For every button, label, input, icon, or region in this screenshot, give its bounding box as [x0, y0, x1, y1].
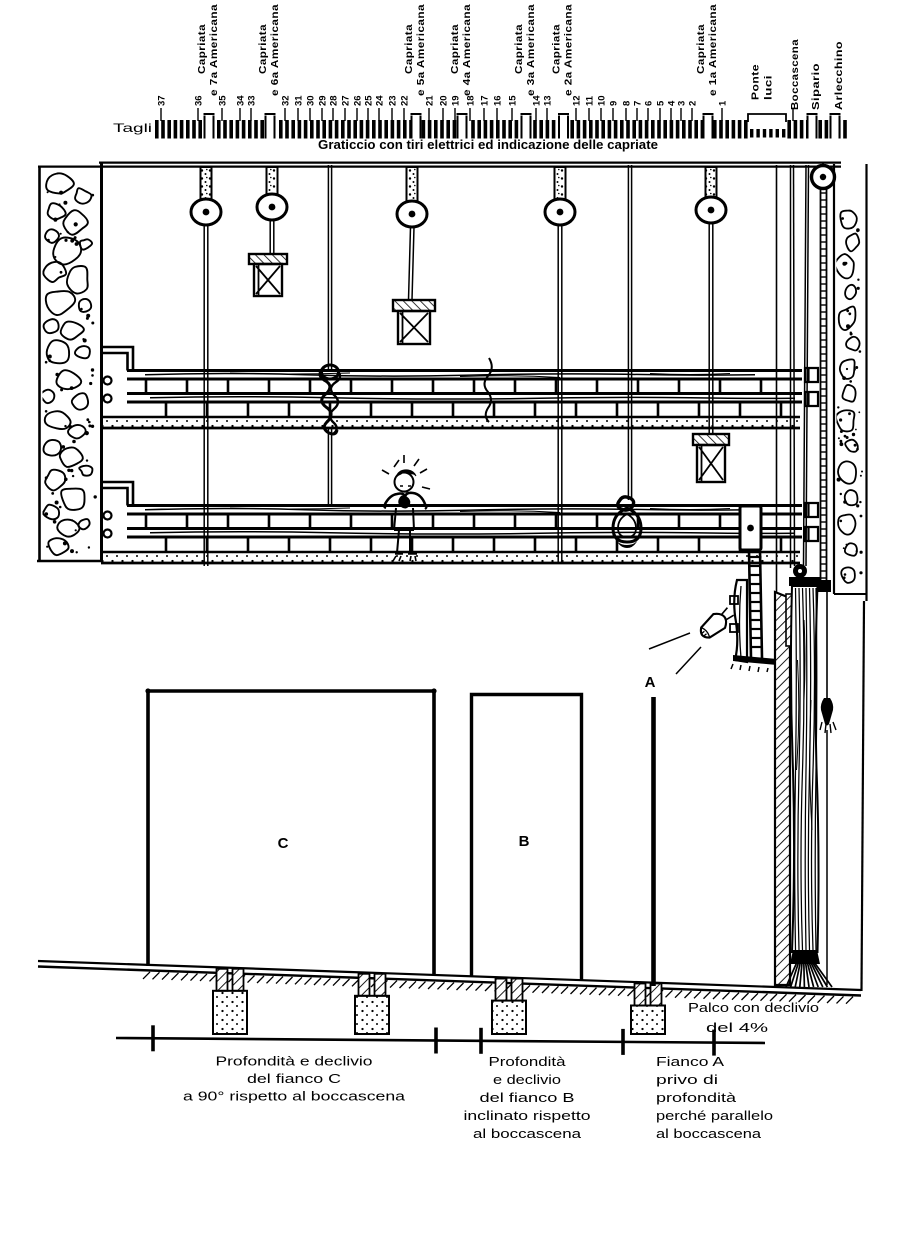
svg-text:23: 23	[387, 95, 398, 106]
svg-text:A: A	[645, 674, 656, 691]
svg-text:10: 10	[596, 95, 607, 106]
svg-text:27: 27	[340, 95, 351, 106]
svg-text:e 7a Americana: e 7a Americana	[208, 4, 220, 96]
svg-text:5: 5	[655, 100, 666, 106]
svg-text:e 2a Americana: e 2a Americana	[563, 4, 575, 96]
svg-text:8: 8	[621, 101, 632, 106]
svg-text:Capriata: Capriata	[257, 24, 269, 74]
svg-text:29: 29	[317, 95, 328, 106]
svg-text:11: 11	[584, 95, 595, 106]
svg-text:22: 22	[399, 95, 410, 106]
svg-text:e 1a Americana: e 1a Americana	[707, 4, 719, 96]
svg-text:Palco con declivio: Palco con declivio	[688, 1000, 819, 1015]
svg-text:Arlecchino: Arlecchino	[833, 41, 845, 110]
svg-text:26: 26	[352, 95, 363, 106]
svg-text:a 90° rispetto al boccascena: a 90° rispetto al boccascena	[183, 1089, 406, 1104]
svg-text:19: 19	[450, 95, 461, 106]
svg-text:Graticcio con tiri elettrici e: Graticcio con tiri elettrici ed indicazi…	[318, 138, 658, 152]
svg-text:1: 1	[717, 100, 728, 106]
svg-text:Capriata: Capriata	[403, 24, 415, 74]
svg-text:Tagli: Tagli	[113, 121, 152, 135]
svg-text:12: 12	[571, 95, 582, 106]
svg-text:Profondità: Profondità	[489, 1054, 567, 1069]
svg-text:2: 2	[687, 101, 698, 106]
svg-text:inclinato rispetto: inclinato rispetto	[464, 1108, 591, 1123]
svg-text:Capriata: Capriata	[550, 24, 562, 74]
svg-text:17: 17	[479, 95, 490, 106]
svg-text:luci: luci	[763, 75, 775, 100]
svg-text:e 4a Americana: e 4a Americana	[461, 4, 473, 96]
svg-text:16: 16	[492, 95, 503, 106]
svg-text:Ponte: Ponte	[750, 64, 762, 100]
svg-text:33: 33	[246, 95, 257, 106]
svg-text:del fianco B: del fianco B	[480, 1090, 575, 1105]
svg-text:30: 30	[305, 95, 316, 106]
svg-text:25: 25	[363, 95, 374, 106]
svg-text:24: 24	[374, 95, 385, 106]
svg-text:28: 28	[328, 95, 339, 106]
svg-text:B: B	[519, 833, 530, 850]
svg-text:18: 18	[465, 95, 476, 106]
svg-text:al boccascena: al boccascena	[473, 1126, 582, 1141]
svg-text:C: C	[278, 835, 289, 852]
svg-text:31: 31	[293, 95, 304, 106]
svg-text:6: 6	[643, 101, 654, 106]
svg-text:Capriata: Capriata	[513, 24, 525, 74]
svg-text:15: 15	[507, 95, 518, 106]
svg-text:privo di: privo di	[656, 1072, 718, 1087]
svg-text:al boccascena: al boccascena	[656, 1126, 762, 1141]
svg-text:3: 3	[676, 101, 687, 106]
svg-text:profondità: profondità	[656, 1090, 737, 1105]
svg-text:del fianco C: del fianco C	[247, 1071, 342, 1086]
svg-text:Capriata: Capriata	[449, 24, 461, 74]
svg-text:perché parallelo: perché parallelo	[656, 1108, 773, 1123]
svg-text:36: 36	[193, 95, 204, 106]
svg-text:e 5a Americana: e 5a Americana	[415, 4, 427, 96]
svg-text:Profondità e declivio: Profondità e declivio	[216, 1054, 373, 1069]
svg-text:Capriata: Capriata	[196, 24, 208, 74]
svg-text:e declivio: e declivio	[493, 1072, 561, 1087]
svg-text:Sipario: Sipario	[810, 63, 822, 110]
svg-text:e 3a Americana: e 3a Americana	[525, 4, 537, 96]
svg-text:7: 7	[632, 101, 643, 106]
svg-text:32: 32	[280, 95, 291, 106]
svg-text:34: 34	[235, 95, 246, 106]
svg-text:Capriata: Capriata	[695, 24, 707, 74]
svg-text:e 6a Americana: e 6a Americana	[269, 4, 281, 96]
svg-text:37: 37	[156, 95, 167, 106]
svg-text:Fianco A: Fianco A	[656, 1054, 724, 1069]
svg-text:Boccascena: Boccascena	[789, 39, 801, 110]
svg-text:13: 13	[542, 95, 553, 106]
svg-text:20: 20	[438, 95, 449, 106]
svg-text:9: 9	[608, 101, 619, 106]
